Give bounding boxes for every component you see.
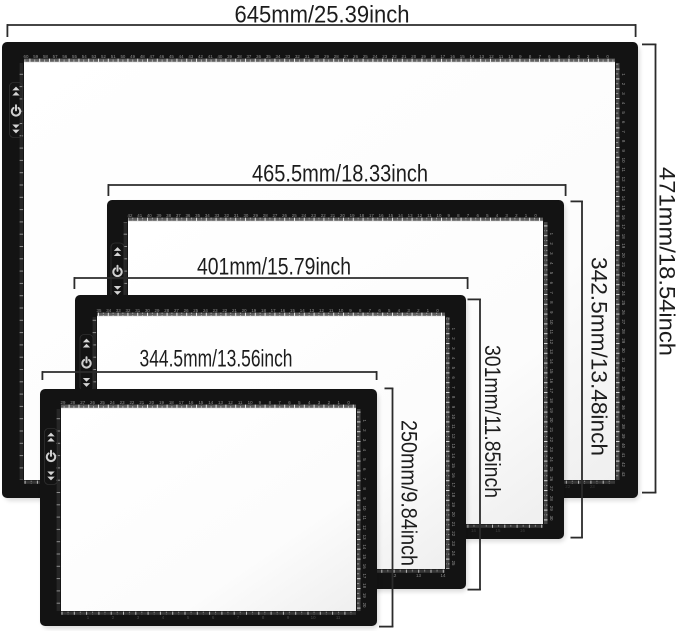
svg-text:41: 41 — [621, 453, 626, 458]
svg-text:18: 18 — [621, 234, 626, 239]
svg-text:16: 16 — [621, 215, 626, 220]
svg-text:10: 10 — [621, 158, 626, 163]
svg-text:40: 40 — [147, 213, 152, 218]
svg-text:23: 23 — [549, 447, 554, 452]
svg-text:18: 18 — [169, 400, 174, 405]
svg-text:18: 18 — [451, 492, 456, 497]
svg-text:35: 35 — [266, 54, 271, 59]
svg-text:11: 11 — [362, 515, 367, 520]
svg-text:401mm/15.79inch: 401mm/15.79inch — [197, 254, 351, 281]
svg-text:25: 25 — [292, 213, 297, 218]
svg-text:15: 15 — [290, 308, 295, 313]
svg-text:17: 17 — [451, 482, 456, 487]
svg-text:42: 42 — [128, 213, 133, 218]
svg-text:40: 40 — [217, 54, 222, 59]
svg-text:10: 10 — [338, 308, 343, 313]
svg-text:10: 10 — [437, 213, 442, 218]
svg-text:38: 38 — [237, 54, 242, 59]
svg-text:23: 23 — [120, 400, 125, 405]
svg-text:33: 33 — [214, 213, 219, 218]
svg-text:12: 12 — [417, 213, 422, 218]
svg-text:14: 14 — [208, 400, 213, 405]
svg-text:10: 10 — [508, 54, 513, 59]
svg-text:32: 32 — [621, 367, 626, 372]
svg-text:12: 12 — [549, 339, 554, 344]
svg-text:49: 49 — [130, 54, 135, 59]
svg-text:17: 17 — [369, 213, 374, 218]
svg-text:26: 26 — [353, 54, 358, 59]
svg-text:24: 24 — [451, 551, 456, 556]
svg-text:19: 19 — [549, 408, 554, 413]
svg-text:14: 14 — [398, 213, 403, 218]
svg-text:13: 13 — [309, 308, 314, 313]
svg-text:25: 25 — [621, 300, 626, 305]
svg-text:17: 17 — [549, 388, 554, 393]
svg-text:18: 18 — [362, 583, 367, 588]
svg-text:471mm/18.54inch: 471mm/18.54inch — [655, 167, 679, 356]
svg-text:18: 18 — [359, 213, 364, 218]
svg-text:28: 28 — [549, 496, 554, 501]
svg-text:24: 24 — [549, 457, 554, 462]
svg-text:20: 20 — [340, 213, 345, 218]
svg-text:59: 59 — [33, 54, 38, 59]
svg-text:25: 25 — [451, 561, 456, 566]
svg-text:35: 35 — [97, 308, 102, 313]
svg-text:17: 17 — [271, 308, 276, 313]
svg-text:14: 14 — [300, 308, 305, 313]
svg-text:34: 34 — [621, 386, 626, 391]
svg-text:13: 13 — [451, 443, 456, 448]
svg-text:36: 36 — [621, 405, 626, 410]
svg-text:15: 15 — [388, 213, 393, 218]
svg-text:13: 13 — [549, 349, 554, 354]
svg-text:32: 32 — [126, 308, 131, 313]
svg-text:26: 26 — [549, 476, 554, 481]
svg-text:14: 14 — [362, 544, 367, 549]
svg-text:50: 50 — [120, 54, 125, 59]
svg-text:24: 24 — [110, 400, 115, 405]
svg-text:15: 15 — [451, 463, 456, 468]
svg-text:25: 25 — [363, 54, 368, 59]
svg-text:16: 16 — [379, 213, 384, 218]
svg-text:22: 22 — [549, 437, 554, 442]
svg-text:17: 17 — [362, 573, 367, 578]
svg-text:12: 12 — [228, 400, 233, 405]
svg-text:20: 20 — [621, 253, 626, 258]
svg-text:12: 12 — [362, 525, 367, 530]
svg-text:22: 22 — [621, 272, 626, 277]
svg-text:12: 12 — [621, 177, 626, 182]
svg-text:11: 11 — [329, 308, 334, 313]
svg-text:33: 33 — [621, 376, 626, 381]
svg-text:21: 21 — [139, 400, 144, 405]
svg-text:28: 28 — [164, 308, 169, 313]
svg-text:11: 11 — [499, 54, 504, 59]
svg-text:52: 52 — [101, 54, 106, 59]
svg-text:26: 26 — [184, 308, 189, 313]
svg-text:19: 19 — [350, 213, 355, 218]
svg-text:22: 22 — [321, 213, 326, 218]
svg-text:31: 31 — [305, 54, 310, 59]
svg-text:44: 44 — [179, 54, 184, 59]
svg-text:48: 48 — [140, 54, 145, 59]
svg-text:43: 43 — [188, 54, 193, 59]
svg-text:21: 21 — [621, 262, 626, 267]
svg-text:35: 35 — [621, 395, 626, 400]
svg-text:31: 31 — [135, 308, 140, 313]
svg-text:60: 60 — [24, 54, 29, 59]
svg-text:10: 10 — [451, 414, 456, 419]
svg-text:39: 39 — [157, 213, 162, 218]
svg-text:28: 28 — [70, 400, 75, 405]
svg-text:45: 45 — [169, 54, 174, 59]
svg-text:26: 26 — [621, 310, 626, 315]
svg-text:41: 41 — [137, 213, 142, 218]
svg-text:14: 14 — [471, 528, 476, 533]
svg-text:17: 17 — [179, 400, 184, 405]
svg-text:29: 29 — [61, 400, 66, 405]
svg-text:19: 19 — [421, 54, 426, 59]
svg-text:19: 19 — [362, 593, 367, 598]
svg-text:22: 22 — [451, 531, 456, 536]
svg-text:20: 20 — [549, 418, 554, 423]
svg-text:30: 30 — [314, 54, 319, 59]
svg-text:27: 27 — [549, 486, 554, 491]
svg-text:29: 29 — [621, 338, 626, 343]
svg-text:301mm/11.85inch: 301mm/11.85inch — [480, 345, 505, 498]
svg-text:14: 14 — [469, 54, 474, 59]
svg-text:58: 58 — [43, 54, 48, 59]
svg-text:31: 31 — [234, 213, 239, 218]
svg-text:54: 54 — [82, 54, 87, 59]
svg-text:20: 20 — [242, 308, 247, 313]
svg-text:12: 12 — [451, 434, 456, 439]
svg-text:34: 34 — [276, 54, 281, 59]
svg-text:13: 13 — [362, 535, 367, 540]
svg-text:39: 39 — [621, 434, 626, 439]
svg-text:27: 27 — [174, 308, 179, 313]
svg-text:12: 12 — [489, 54, 494, 59]
svg-text:11: 11 — [336, 615, 341, 620]
svg-text:10: 10 — [248, 400, 253, 405]
svg-text:23: 23 — [621, 281, 626, 286]
svg-text:23: 23 — [590, 484, 595, 489]
svg-text:16: 16 — [451, 473, 456, 478]
svg-text:34: 34 — [106, 308, 111, 313]
svg-text:30: 30 — [549, 516, 554, 521]
svg-text:11: 11 — [549, 330, 554, 335]
svg-text:13: 13 — [479, 54, 484, 59]
svg-text:37: 37 — [621, 414, 626, 419]
svg-text:14: 14 — [451, 453, 456, 458]
svg-text:18: 18 — [549, 398, 554, 403]
svg-text:28: 28 — [334, 54, 339, 59]
svg-text:51: 51 — [111, 54, 116, 59]
svg-text:15: 15 — [621, 205, 626, 210]
svg-text:17: 17 — [440, 54, 445, 59]
svg-text:14: 14 — [549, 359, 554, 364]
svg-text:14: 14 — [621, 196, 626, 201]
svg-text:57: 57 — [53, 54, 58, 59]
svg-text:24: 24 — [301, 213, 306, 218]
svg-text:23: 23 — [451, 541, 456, 546]
svg-text:26: 26 — [282, 213, 287, 218]
svg-text:27: 27 — [80, 400, 85, 405]
svg-text:465.5mm/18.33inch: 465.5mm/18.33inch — [252, 161, 428, 188]
svg-text:25: 25 — [100, 400, 105, 405]
svg-text:27: 27 — [343, 54, 348, 59]
svg-text:15: 15 — [460, 54, 465, 59]
svg-text:30: 30 — [243, 213, 248, 218]
svg-text:18: 18 — [261, 308, 266, 313]
svg-text:25: 25 — [549, 467, 554, 472]
svg-text:30: 30 — [621, 348, 626, 353]
svg-text:36: 36 — [185, 213, 190, 218]
svg-text:22: 22 — [222, 308, 227, 313]
svg-text:15: 15 — [549, 369, 554, 374]
svg-text:17: 17 — [621, 224, 626, 229]
svg-text:20: 20 — [451, 512, 456, 517]
svg-text:53: 53 — [91, 54, 96, 59]
svg-text:15: 15 — [198, 400, 203, 405]
svg-text:13: 13 — [416, 573, 421, 578]
svg-text:22: 22 — [392, 54, 397, 59]
svg-text:26: 26 — [90, 400, 95, 405]
svg-text:32: 32 — [295, 54, 300, 59]
svg-text:18: 18 — [431, 54, 436, 59]
svg-text:47: 47 — [150, 54, 155, 59]
svg-text:24: 24 — [373, 54, 378, 59]
svg-text:38: 38 — [621, 424, 626, 429]
svg-text:32: 32 — [224, 213, 229, 218]
svg-text:29: 29 — [155, 308, 160, 313]
svg-text:38: 38 — [166, 213, 171, 218]
svg-text:12: 12 — [319, 308, 324, 313]
svg-text:36: 36 — [256, 54, 261, 59]
svg-text:250mm/9.84inch: 250mm/9.84inch — [397, 420, 422, 566]
svg-text:22: 22 — [129, 400, 134, 405]
svg-text:55: 55 — [72, 54, 77, 59]
svg-text:28: 28 — [621, 329, 626, 334]
svg-text:30: 30 — [145, 308, 150, 313]
svg-text:15: 15 — [496, 528, 501, 533]
svg-text:10: 10 — [549, 320, 554, 325]
svg-text:23: 23 — [382, 54, 387, 59]
svg-text:344.5mm/13.56inch: 344.5mm/13.56inch — [140, 346, 293, 373]
svg-text:645mm/25.39inch: 645mm/25.39inch — [235, 2, 410, 29]
svg-text:13: 13 — [408, 213, 413, 218]
svg-text:23: 23 — [311, 213, 316, 218]
svg-text:21: 21 — [402, 54, 407, 59]
svg-text:23: 23 — [213, 308, 218, 313]
svg-text:11: 11 — [621, 167, 626, 172]
svg-text:40: 40 — [621, 443, 626, 448]
svg-text:39: 39 — [227, 54, 232, 59]
svg-text:22: 22 — [565, 484, 570, 489]
svg-text:24: 24 — [203, 308, 208, 313]
svg-text:19: 19 — [251, 308, 256, 313]
svg-text:16: 16 — [280, 308, 285, 313]
svg-text:11: 11 — [238, 400, 243, 405]
svg-text:11: 11 — [427, 213, 432, 218]
svg-text:41: 41 — [208, 54, 213, 59]
svg-text:29: 29 — [549, 506, 554, 511]
svg-text:28: 28 — [263, 213, 268, 218]
svg-text:10: 10 — [362, 506, 367, 511]
svg-text:33: 33 — [116, 308, 121, 313]
svg-text:19: 19 — [159, 400, 164, 405]
svg-text:42: 42 — [198, 54, 203, 59]
svg-text:13: 13 — [621, 186, 626, 191]
svg-text:21: 21 — [451, 522, 456, 527]
svg-text:21: 21 — [549, 427, 554, 432]
svg-text:27: 27 — [621, 319, 626, 324]
svg-text:19: 19 — [451, 502, 456, 507]
svg-text:20: 20 — [149, 400, 154, 405]
svg-text:16: 16 — [450, 54, 455, 59]
svg-text:27: 27 — [272, 213, 277, 218]
svg-text:16: 16 — [520, 528, 525, 533]
svg-text:15: 15 — [362, 554, 367, 559]
svg-text:16: 16 — [189, 400, 194, 405]
svg-text:46: 46 — [159, 54, 164, 59]
svg-text:29: 29 — [253, 213, 258, 218]
svg-text:56: 56 — [62, 54, 67, 59]
svg-text:16: 16 — [362, 564, 367, 569]
svg-text:29: 29 — [324, 54, 329, 59]
svg-text:33: 33 — [285, 54, 290, 59]
svg-text:13: 13 — [218, 400, 223, 405]
svg-text:21: 21 — [330, 213, 335, 218]
svg-text:43: 43 — [621, 472, 626, 477]
svg-text:35: 35 — [195, 213, 200, 218]
svg-text:34: 34 — [205, 213, 210, 218]
svg-text:16: 16 — [549, 378, 554, 383]
svg-text:24: 24 — [621, 291, 626, 296]
svg-text:14: 14 — [441, 573, 446, 578]
svg-text:42: 42 — [621, 462, 626, 467]
svg-text:11: 11 — [451, 424, 456, 429]
svg-text:31: 31 — [621, 357, 626, 362]
svg-text:19: 19 — [621, 243, 626, 248]
svg-text:342.5mm/13.48inch: 342.5mm/13.48inch — [587, 257, 612, 456]
svg-text:10: 10 — [311, 615, 316, 620]
svg-text:21: 21 — [232, 308, 237, 313]
svg-text:25: 25 — [193, 308, 198, 313]
svg-text:20: 20 — [362, 603, 367, 608]
svg-text:20: 20 — [411, 54, 416, 59]
svg-text:37: 37 — [176, 213, 181, 218]
svg-text:37: 37 — [246, 54, 251, 59]
